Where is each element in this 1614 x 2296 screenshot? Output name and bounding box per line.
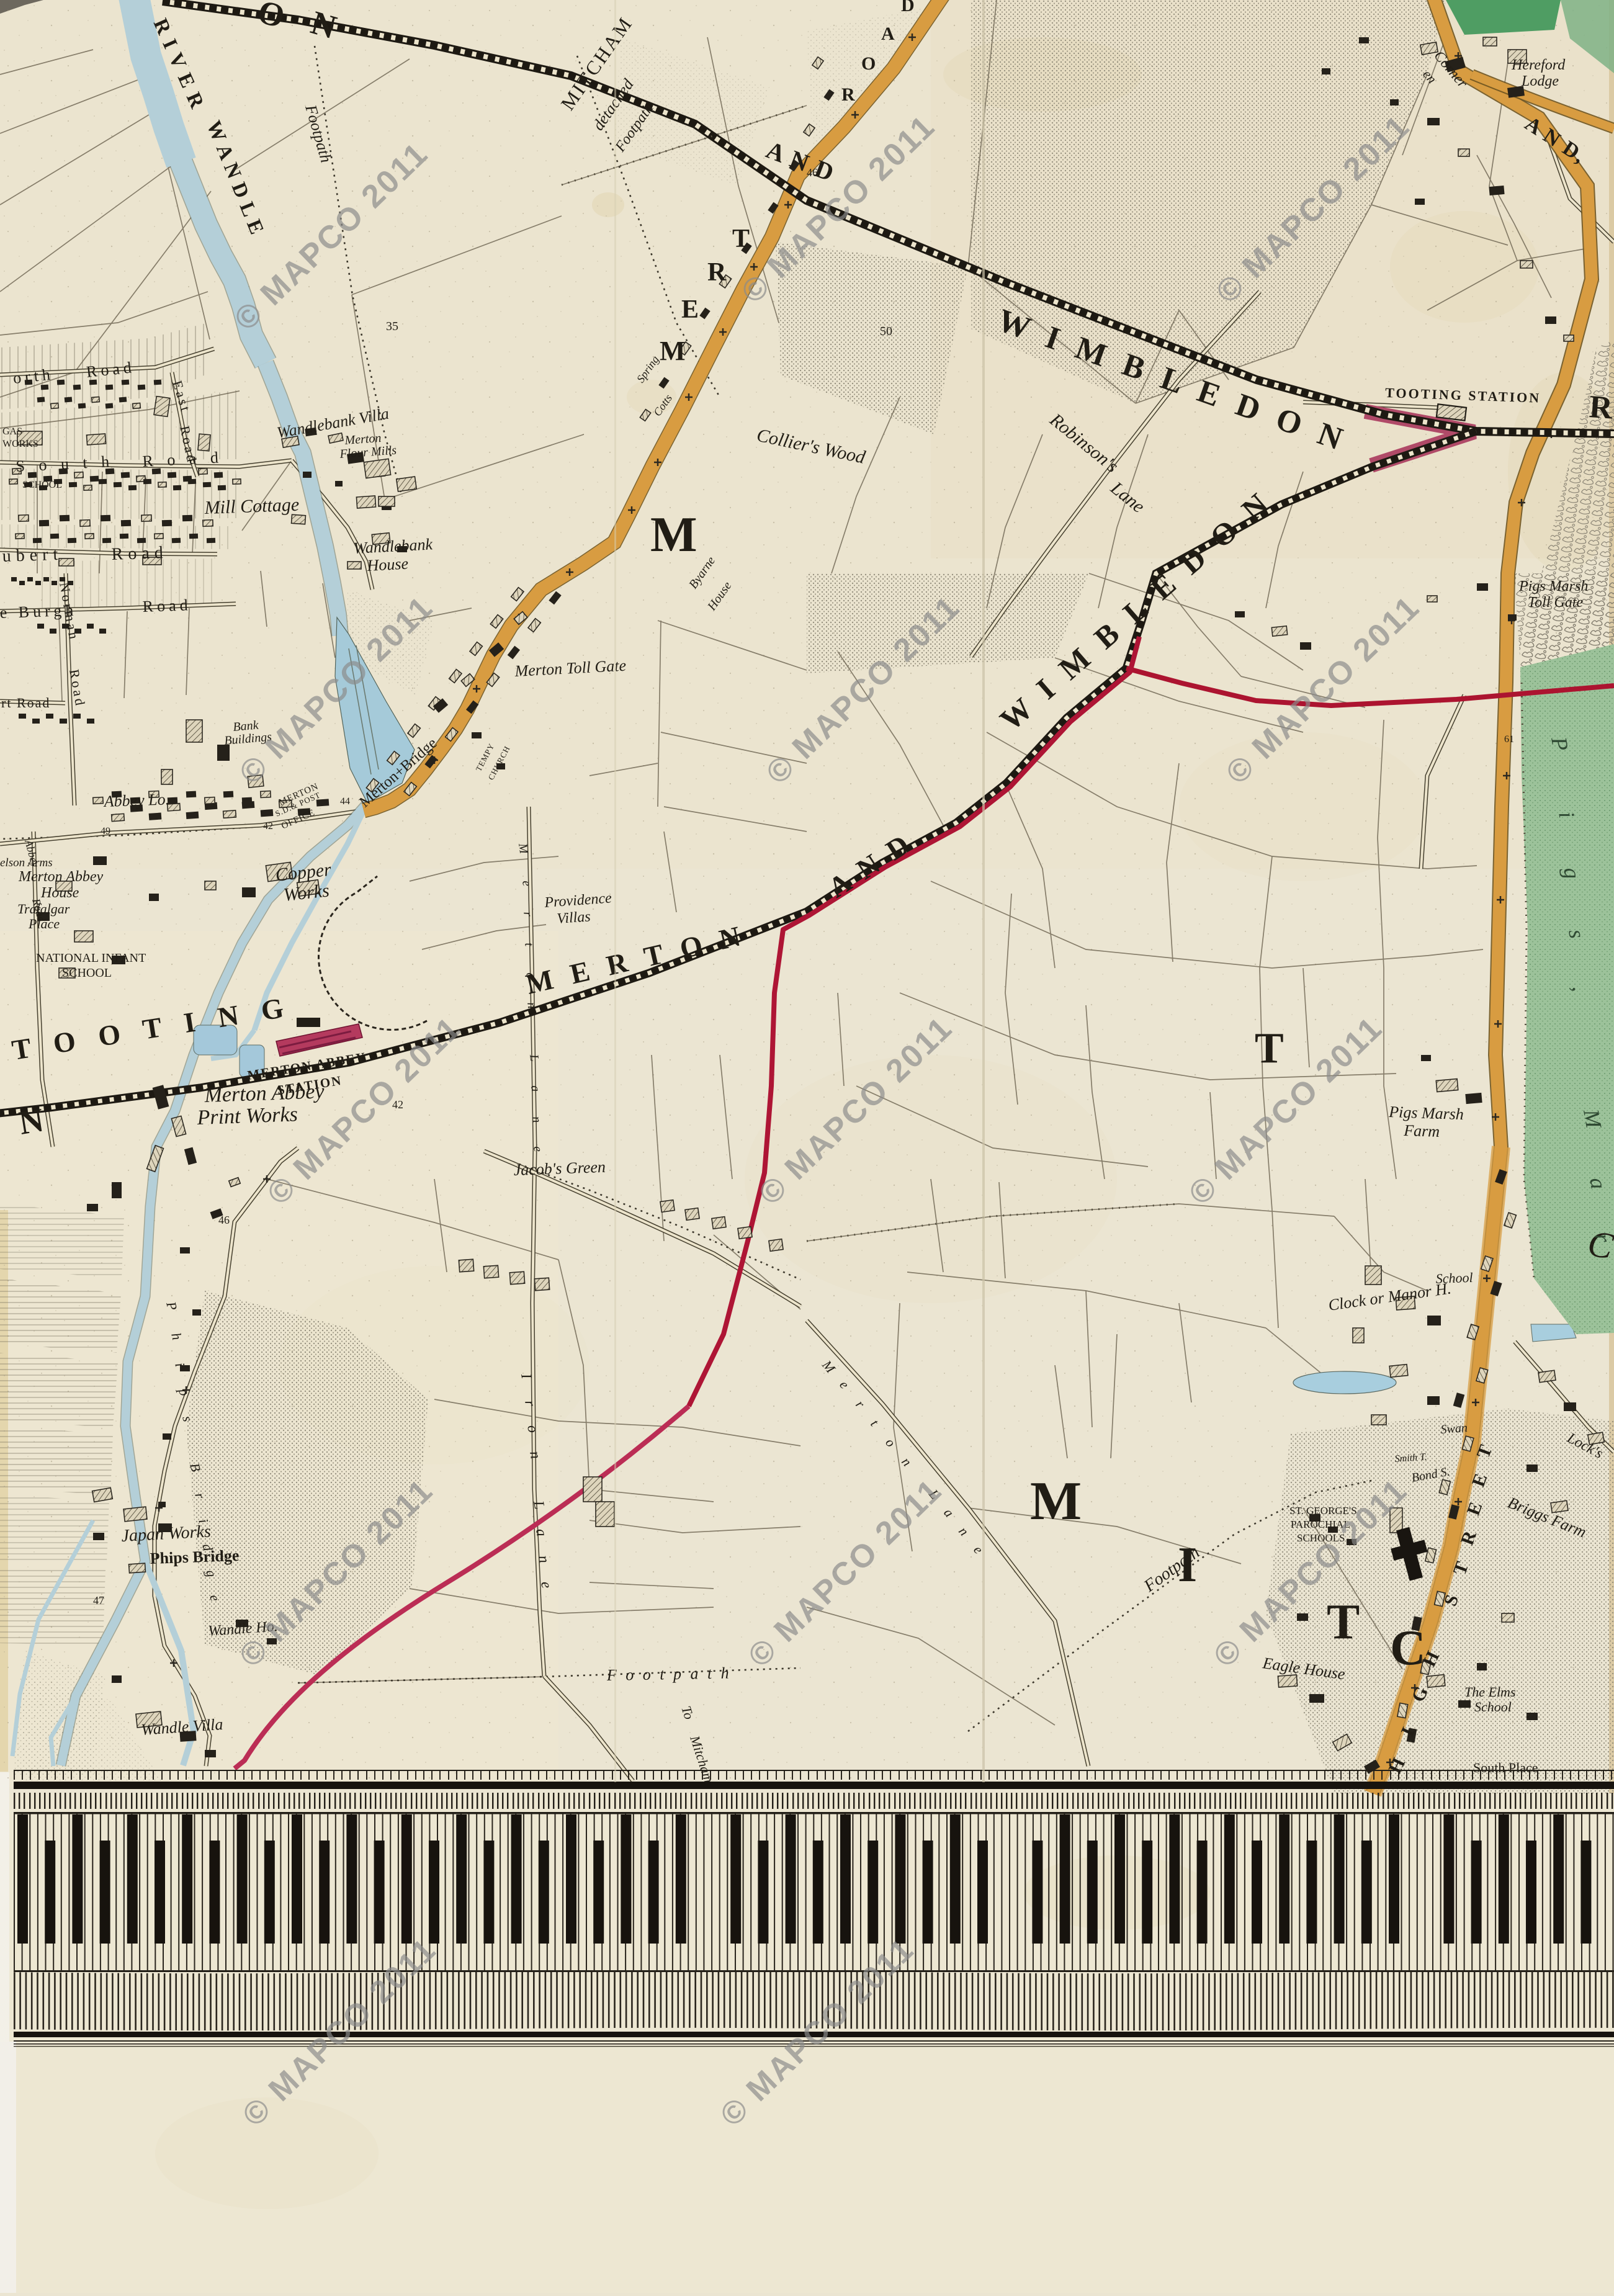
svg-text:South Place: South Place xyxy=(1473,1760,1538,1775)
svg-text:Villas: Villas xyxy=(557,908,591,927)
svg-text:C: C xyxy=(1390,1621,1426,1675)
svg-text:Hereford: Hereford xyxy=(1511,57,1566,73)
svg-text:R: R xyxy=(707,258,727,287)
svg-text:M: M xyxy=(660,336,686,366)
svg-text:44: 44 xyxy=(340,796,350,807)
svg-text:46: 46 xyxy=(218,1214,230,1226)
svg-text:House: House xyxy=(366,555,409,575)
svg-text:NATIONAL INFANT: NATIONAL INFANT xyxy=(36,951,146,965)
svg-text:Pigs Marsh: Pigs Marsh xyxy=(1518,578,1588,594)
svg-text:R: R xyxy=(1588,389,1614,426)
svg-text:Merton Abbey: Merton Abbey xyxy=(204,1080,325,1107)
svg-text:F o o t p a t h: F o o t p a t h xyxy=(606,1664,732,1684)
svg-text:GAS: GAS xyxy=(2,426,22,437)
svg-text:WORKS: WORKS xyxy=(2,439,38,449)
svg-text:46: 46 xyxy=(807,166,818,179)
svg-text:elson Arms: elson Arms xyxy=(0,856,53,869)
svg-text:The Elms: The Elms xyxy=(1464,1684,1516,1700)
svg-text:47: 47 xyxy=(93,1594,104,1607)
svg-text:61: 61 xyxy=(1504,734,1514,745)
svg-text:E: E xyxy=(681,295,699,324)
svg-text:Merton Abbey: Merton Abbey xyxy=(18,869,104,885)
svg-text:Abbey Lo.: Abbey Lo. xyxy=(102,790,169,810)
svg-text:SCHOOL: SCHOOL xyxy=(62,966,112,980)
svg-text:Farm: Farm xyxy=(1403,1121,1440,1141)
svg-text:50: 50 xyxy=(880,325,892,338)
svg-text:Road: Road xyxy=(111,543,168,564)
svg-text:R: R xyxy=(841,84,855,105)
svg-text:Print Works: Print Works xyxy=(196,1103,298,1129)
svg-text:O: O xyxy=(861,53,876,74)
svg-text:Trafalgar: Trafalgar xyxy=(17,901,70,917)
svg-text:Pigs Marsh: Pigs Marsh xyxy=(1388,1103,1464,1123)
svg-text:rt Road: rt Road xyxy=(1,695,50,711)
svg-text:Road: Road xyxy=(142,596,192,616)
svg-text:Toll Gate: Toll Gate xyxy=(1528,594,1583,611)
svg-text:35: 35 xyxy=(386,320,398,333)
svg-text:D: D xyxy=(901,0,915,16)
svg-text:School: School xyxy=(1474,1699,1512,1715)
svg-text:M: M xyxy=(1030,1471,1082,1531)
svg-text:M: M xyxy=(650,508,697,562)
svg-text:ubert: ubert xyxy=(2,545,63,566)
svg-text:T: T xyxy=(1255,1025,1284,1072)
svg-text:42: 42 xyxy=(263,821,273,832)
svg-text:T: T xyxy=(732,225,750,253)
svg-text:House: House xyxy=(40,885,79,901)
svg-text:SCHOOL: SCHOOL xyxy=(22,480,62,490)
svg-text:Phips Bridge: Phips Bridge xyxy=(150,1546,240,1567)
svg-text:Mill Cottage: Mill Cottage xyxy=(204,495,300,518)
svg-text:Smith T.: Smith T. xyxy=(1394,1451,1427,1464)
svg-text:49: 49 xyxy=(101,826,110,836)
svg-text:Jacob's Green: Jacob's Green xyxy=(513,1158,606,1179)
svg-text:A: A xyxy=(881,24,895,44)
svg-text:Place: Place xyxy=(28,916,60,931)
svg-text:T: T xyxy=(1327,1595,1360,1649)
svg-text:Swan: Swan xyxy=(1440,1421,1468,1437)
svg-text:Lodge: Lodge xyxy=(1521,73,1559,89)
